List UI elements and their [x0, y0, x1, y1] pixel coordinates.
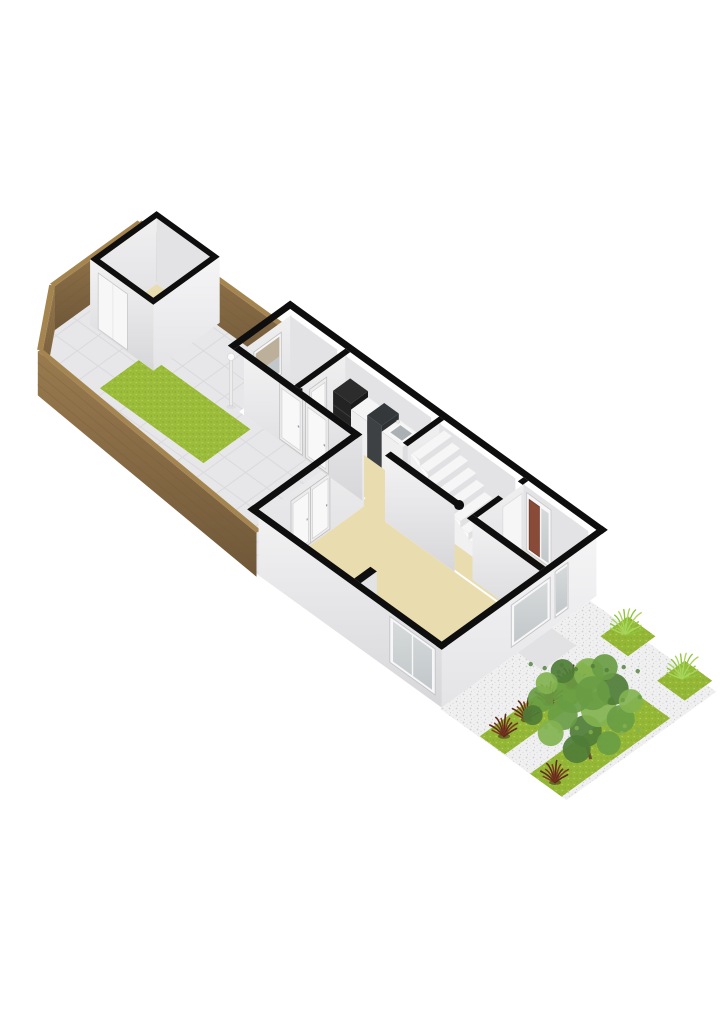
entry-window: [555, 562, 568, 617]
floorplan-scene: [0, 0, 724, 1024]
fern-plant-2: [667, 653, 699, 679]
floorplan-3d-view: [0, 0, 724, 1024]
fern-plant-1: [611, 609, 643, 635]
